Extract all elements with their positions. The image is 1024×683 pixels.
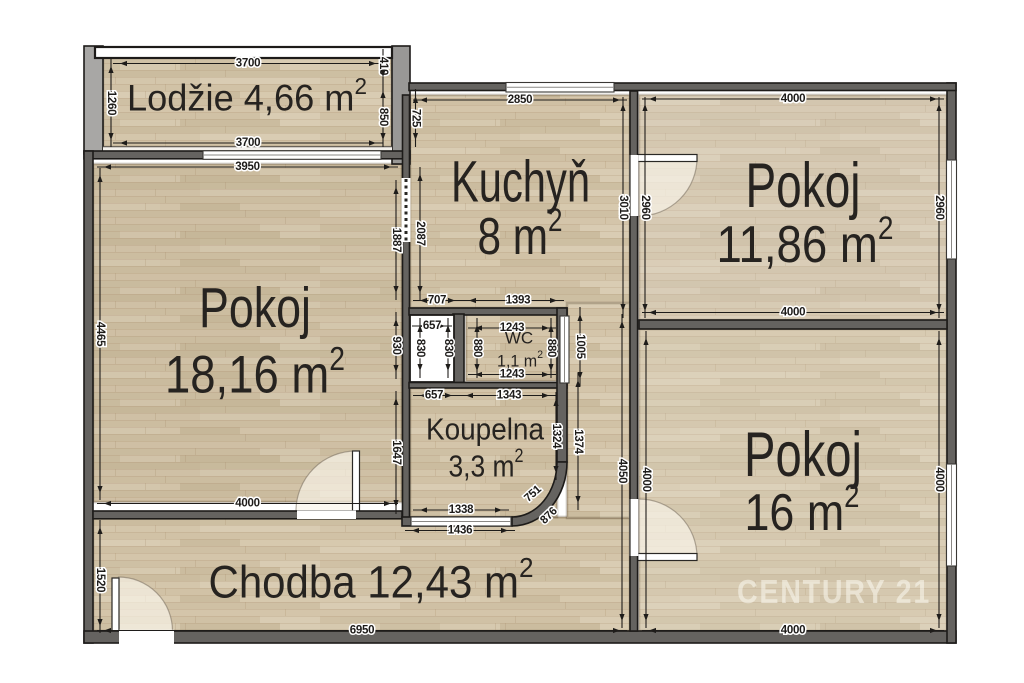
svg-text:1436: 1436 (448, 525, 472, 537)
svg-text:Pokoj: Pokoj (746, 151, 861, 221)
svg-text:4000: 4000 (640, 467, 652, 491)
svg-text:1374: 1374 (572, 429, 584, 454)
svg-text:3,3 m2: 3,3 m2 (449, 446, 524, 484)
svg-text:11,86 m2: 11,86 m2 (717, 210, 894, 274)
svg-text:4050: 4050 (616, 459, 628, 483)
svg-text:657: 657 (423, 320, 441, 332)
svg-text:830: 830 (414, 339, 426, 357)
svg-text:WC: WC (505, 329, 533, 348)
svg-text:1005: 1005 (574, 334, 586, 359)
svg-text:4000: 4000 (933, 467, 945, 491)
svg-text:2850: 2850 (508, 94, 532, 106)
svg-text:1343: 1343 (497, 390, 521, 402)
svg-text:830: 830 (442, 339, 454, 357)
svg-text:Lodžie 4,66 m2: Lodžie 4,66 m2 (127, 73, 367, 119)
svg-text:4000: 4000 (781, 307, 805, 319)
svg-text:850: 850 (377, 108, 389, 126)
svg-text:1,1 m2: 1,1 m2 (497, 349, 543, 371)
svg-text:CENTURY 21: CENTURY 21 (737, 573, 931, 610)
svg-text:2087: 2087 (414, 221, 426, 245)
svg-text:18,16 m2: 18,16 m2 (165, 340, 345, 405)
svg-text:3010: 3010 (617, 195, 629, 219)
svg-text:16 m2: 16 m2 (745, 478, 860, 542)
svg-text:Pokoj: Pokoj (199, 276, 311, 340)
svg-text:3700: 3700 (236, 58, 260, 70)
svg-text:880: 880 (545, 339, 557, 357)
svg-text:725: 725 (410, 109, 422, 128)
svg-text:1260: 1260 (105, 91, 117, 115)
svg-text:657: 657 (425, 390, 443, 402)
svg-text:1887: 1887 (390, 228, 402, 252)
svg-text:3950: 3950 (235, 161, 259, 173)
svg-text:4000: 4000 (781, 625, 805, 637)
svg-text:1520: 1520 (94, 568, 106, 592)
svg-text:4000: 4000 (781, 93, 805, 105)
svg-text:3700: 3700 (236, 137, 260, 149)
svg-text:1324: 1324 (550, 424, 562, 449)
svg-text:930: 930 (390, 336, 402, 354)
svg-text:880: 880 (471, 339, 483, 357)
svg-text:Koupelna: Koupelna (426, 412, 545, 447)
svg-text:2960: 2960 (933, 195, 945, 219)
svg-text:Kuchyň: Kuchyň (451, 150, 590, 215)
svg-text:1393: 1393 (506, 295, 530, 307)
svg-text:2960: 2960 (639, 195, 651, 219)
svg-text:4000: 4000 (235, 498, 259, 510)
svg-text:1647: 1647 (390, 440, 402, 464)
svg-text:707: 707 (428, 295, 446, 307)
svg-text:Chodba 12,43 m2: Chodba 12,43 m2 (209, 552, 534, 608)
svg-text:4465: 4465 (94, 322, 106, 347)
svg-text:1338: 1338 (449, 504, 474, 516)
svg-text:6950: 6950 (350, 625, 374, 637)
